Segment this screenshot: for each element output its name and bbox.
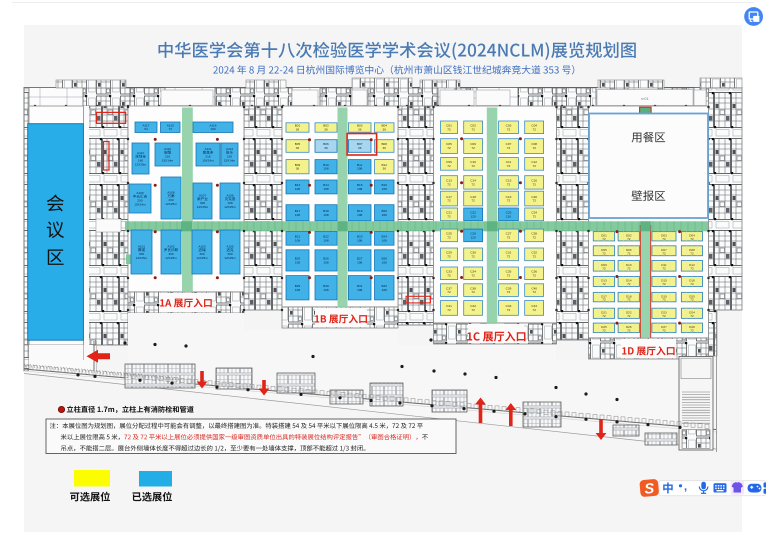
svg-text:108: 108 — [295, 238, 300, 242]
svg-text:72: 72 — [507, 273, 511, 277]
svg-text:72: 72 — [507, 290, 511, 294]
svg-text:72: 72 — [532, 235, 536, 239]
svg-text:108: 108 — [295, 213, 300, 217]
svg-text:72: 72 — [447, 164, 451, 168]
svg-text:72: 72 — [602, 298, 606, 302]
svg-text:72: 72 — [532, 182, 536, 186]
svg-text:72: 72 — [690, 282, 694, 286]
svg-text:108: 108 — [295, 288, 300, 292]
svg-text:108: 108 — [295, 187, 300, 191]
svg-text:54: 54 — [144, 127, 148, 131]
svg-text:72: 72 — [507, 199, 511, 203]
svg-text:72: 72 — [447, 182, 451, 186]
svg-text:A107: A107 — [199, 193, 207, 197]
svg-text:15X14m: 15X14m — [134, 202, 146, 206]
svg-text:12X25m: 12X25m — [165, 202, 177, 206]
svg-text:36: 36 — [324, 146, 328, 150]
svg-text:72: 72 — [662, 329, 666, 333]
svg-text:36: 36 — [382, 128, 386, 132]
svg-text:,: , — [684, 481, 687, 493]
svg-text:72: 72 — [627, 329, 631, 333]
svg-text:12X25m: 12X25m — [136, 256, 148, 260]
svg-text:108: 108 — [295, 260, 300, 264]
svg-text:72: 72 — [471, 199, 475, 203]
svg-text:108: 108 — [357, 238, 362, 242]
svg-text:15X14m: 15X14m — [224, 158, 236, 162]
svg-text:12X25m: 12X25m — [197, 205, 209, 209]
svg-text:12X25m: 12X25m — [224, 256, 236, 260]
svg-text:72: 72 — [471, 273, 475, 277]
svg-text:72: 72 — [690, 314, 694, 318]
svg-text:72: 72 — [471, 164, 475, 168]
svg-text:108: 108 — [323, 167, 328, 171]
svg-text:72: 72 — [532, 146, 536, 150]
svg-text:36: 36 — [324, 128, 328, 132]
svg-text:A111: A111 — [205, 147, 212, 151]
svg-text:72: 72 — [471, 308, 475, 312]
svg-text:36: 36 — [382, 146, 386, 150]
svg-text:72: 72 — [532, 199, 536, 203]
svg-text:72: 72 — [447, 235, 451, 239]
svg-text:72: 72 — [532, 164, 536, 168]
svg-text:72: 72 — [507, 235, 511, 239]
svg-text:36: 36 — [296, 128, 300, 132]
svg-text:72: 72 — [471, 254, 475, 258]
svg-text:36: 36 — [358, 128, 362, 132]
svg-text:A112: A112 — [137, 151, 144, 155]
svg-text:72: 72 — [662, 237, 666, 241]
svg-text:A101: A101 — [138, 244, 146, 248]
svg-text:72: 72 — [507, 182, 511, 186]
svg-text:108: 108 — [382, 213, 387, 217]
svg-text:72: 72 — [627, 314, 631, 318]
svg-text:72: 72 — [447, 308, 451, 312]
svg-text:108: 108 — [357, 167, 362, 171]
svg-text:36: 36 — [358, 146, 362, 150]
svg-text:72: 72 — [690, 251, 694, 255]
svg-text:108: 108 — [382, 288, 387, 292]
svg-text:120: 120 — [471, 214, 476, 218]
svg-text:m01: m01 — [641, 96, 650, 101]
svg-text:12X25m: 12X25m — [165, 256, 177, 260]
svg-text:A109: A109 — [136, 191, 144, 195]
svg-text:72: 72 — [532, 214, 536, 218]
svg-text:72: 72 — [627, 282, 631, 286]
svg-text:72: 72 — [447, 214, 451, 218]
svg-text:A108: A108 — [167, 190, 175, 194]
svg-text:72: 72 — [662, 298, 666, 302]
svg-text:72: 72 — [447, 290, 451, 294]
svg-text:72: 72 — [690, 266, 694, 270]
svg-text:72: 72 — [602, 329, 606, 333]
svg-text:72: 72 — [447, 127, 451, 131]
svg-text:S: S — [644, 481, 655, 498]
svg-text:108: 108 — [323, 238, 328, 242]
svg-text:72: 72 — [690, 237, 694, 241]
svg-text:72: 72 — [447, 254, 451, 258]
svg-text:72: 72 — [471, 182, 475, 186]
svg-text:72: 72 — [627, 298, 631, 302]
svg-text:190: 190 — [210, 127, 215, 131]
svg-text:15X14m: 15X14m — [162, 158, 174, 162]
svg-text:72: 72 — [507, 146, 511, 150]
svg-text:108: 108 — [323, 187, 328, 191]
svg-text:36: 36 — [382, 167, 386, 171]
svg-text:108: 108 — [357, 187, 362, 191]
svg-text:72: 72 — [471, 146, 475, 150]
svg-text:36: 36 — [296, 167, 300, 171]
svg-text:72: 72 — [662, 251, 666, 255]
svg-text:72: 72 — [602, 266, 606, 270]
svg-text:72: 72 — [532, 254, 536, 258]
svg-text:72: 72 — [602, 237, 606, 241]
svg-text:A102: A102 — [167, 244, 175, 248]
svg-text:A106: A106 — [226, 193, 234, 197]
svg-text:120: 120 — [471, 235, 476, 239]
svg-text:120: 120 — [506, 214, 511, 218]
svg-text:72: 72 — [602, 282, 606, 286]
svg-text:15X14m: 15X14m — [202, 158, 214, 162]
svg-text:72: 72 — [602, 251, 606, 255]
svg-text:72: 72 — [627, 237, 631, 241]
svg-text:72: 72 — [447, 146, 451, 150]
svg-text:72: 72 — [471, 290, 475, 294]
svg-text:72: 72 — [627, 251, 631, 255]
svg-text:A103: A103 — [198, 244, 206, 248]
svg-text:72: 72 — [507, 127, 511, 131]
svg-text:108: 108 — [357, 213, 362, 217]
svg-text:72: 72 — [662, 314, 666, 318]
svg-text:72: 72 — [690, 298, 694, 302]
svg-text:72: 72 — [602, 314, 606, 318]
svg-text:72: 72 — [507, 254, 511, 258]
svg-text:A110: A110 — [164, 147, 171, 151]
svg-text:72: 72 — [532, 308, 536, 312]
svg-text:A113: A113 — [226, 147, 233, 151]
svg-text:108: 108 — [382, 187, 387, 191]
svg-text:108: 108 — [323, 260, 328, 264]
svg-text:72: 72 — [532, 290, 536, 294]
svg-text:12X25m: 12X25m — [196, 256, 208, 260]
svg-text:72: 72 — [532, 127, 536, 131]
svg-text:72: 72 — [507, 164, 511, 168]
svg-text:12X25m: 12X25m — [135, 162, 147, 166]
svg-text:36: 36 — [296, 146, 300, 150]
svg-text:108: 108 — [357, 288, 362, 292]
svg-text:12X25m: 12X25m — [224, 205, 236, 209]
svg-text:A105: A105 — [226, 244, 234, 248]
svg-text:72: 72 — [662, 282, 666, 286]
svg-text:72: 72 — [662, 266, 666, 270]
svg-text:108: 108 — [382, 260, 387, 264]
svg-text:108: 108 — [323, 213, 328, 217]
svg-text:72: 72 — [532, 273, 536, 277]
svg-text:108: 108 — [323, 288, 328, 292]
svg-text:72: 72 — [168, 127, 172, 131]
svg-text:72: 72 — [627, 266, 631, 270]
svg-text:72: 72 — [471, 127, 475, 131]
svg-text:72: 72 — [447, 199, 451, 203]
svg-text:72: 72 — [690, 329, 694, 333]
svg-text:72: 72 — [447, 273, 451, 277]
svg-text:72: 72 — [507, 308, 511, 312]
svg-text:108: 108 — [357, 260, 362, 264]
svg-text:108: 108 — [382, 238, 387, 242]
